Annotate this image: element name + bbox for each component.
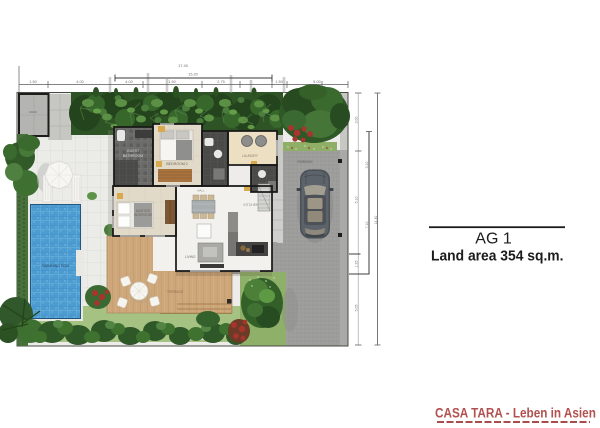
svg-text:SWIMMING POOL: SWIMMING POOL xyxy=(42,264,71,268)
svg-text:LAUNDRY: LAUNDRY xyxy=(242,154,259,158)
svg-text:KITCHEN: KITCHEN xyxy=(244,203,259,207)
svg-text:3.00: 3.00 xyxy=(355,117,359,124)
svg-text:1.50: 1.50 xyxy=(275,80,282,84)
svg-text:15.20: 15.20 xyxy=(188,73,198,77)
svg-text:3.10: 3.10 xyxy=(365,162,369,169)
svg-text:17.40: 17.40 xyxy=(178,63,189,68)
svg-text:4.00: 4.00 xyxy=(76,80,83,84)
svg-text:LIVING: LIVING xyxy=(185,255,196,259)
svg-text:5.05: 5.05 xyxy=(355,305,359,312)
svg-text:14.40: 14.40 xyxy=(374,216,378,225)
svg-text:7.10: 7.10 xyxy=(365,222,369,229)
svg-text:GUEST: GUEST xyxy=(127,149,140,153)
svg-text:4.00: 4.00 xyxy=(125,80,132,84)
svg-text:TERRACE: TERRACE xyxy=(167,290,184,294)
svg-text:AG 1: AG 1 xyxy=(475,231,512,248)
svg-text:CASA TARA - Leben in Asien: CASA TARA - Leben in Asien xyxy=(435,405,596,421)
svg-text:2.75: 2.75 xyxy=(217,80,224,84)
svg-text:BEDROOM 2: BEDROOM 2 xyxy=(166,162,188,166)
svg-text:MAID: MAID xyxy=(29,110,37,114)
svg-text:5.00: 5.00 xyxy=(313,80,320,84)
svg-text:BATHROOM: BATHROOM xyxy=(123,154,144,158)
svg-text:PARKING: PARKING xyxy=(297,160,312,164)
svg-text:Land area 354 sq.m.: Land area 354 sq.m. xyxy=(431,248,563,265)
svg-text:1.50: 1.50 xyxy=(168,80,175,84)
svg-text:1.25: 1.25 xyxy=(355,261,359,268)
svg-text:HALL: HALL xyxy=(197,189,205,193)
svg-text:1.50: 1.50 xyxy=(29,80,36,84)
svg-text:5.10: 5.10 xyxy=(355,197,359,204)
svg-text:BEDROOM: BEDROOM xyxy=(134,213,152,217)
